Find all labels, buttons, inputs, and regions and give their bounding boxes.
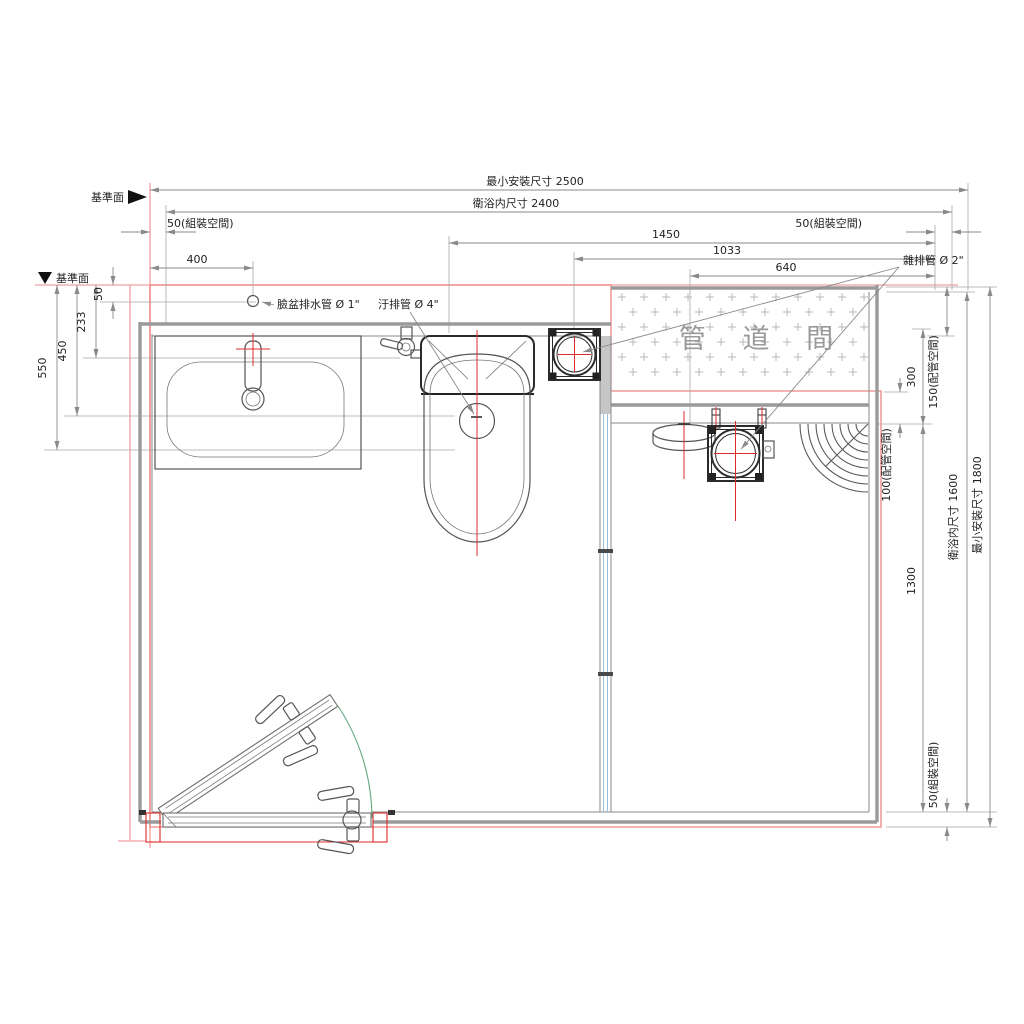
dim-interior-height: 衛浴内尺寸 1600 bbox=[946, 474, 960, 561]
corner-drain-grate bbox=[800, 424, 868, 492]
label-misc-drain: 雜排管 Ø 2" bbox=[903, 253, 964, 267]
dim-pipe-space-100: 100(配管空間) bbox=[879, 428, 893, 502]
bathroom-plan-drawing: 基準面 基準面 最小安裝尺寸 2500 衛浴内尺寸 2400 50(組裝空間) … bbox=[0, 0, 1024, 1024]
dim-pipe-space-150: 150(配管空間) bbox=[926, 335, 940, 409]
soil-pipe-leader bbox=[410, 312, 474, 414]
datum-triangle-top bbox=[128, 190, 147, 204]
datum-label-left: 基準面 bbox=[56, 271, 89, 285]
floor-drain-1 bbox=[549, 329, 600, 380]
flush-valve-lever bbox=[380, 338, 403, 350]
entry-door bbox=[143, 671, 387, 854]
dim-min-install-height: 最小安裝尺寸 1800 bbox=[970, 456, 984, 554]
door-swing-arc bbox=[338, 706, 372, 818]
partition-head bbox=[600, 336, 611, 414]
label-soil-pipe: 汙排管 Ø 4" bbox=[378, 297, 439, 311]
dim-233: 233 bbox=[75, 312, 88, 333]
dim-1033: 1033 bbox=[713, 244, 741, 257]
dim-640: 640 bbox=[776, 261, 797, 274]
extension-lines bbox=[44, 183, 997, 827]
dim-min-install-width: 最小安裝尺寸 2500 bbox=[486, 174, 584, 188]
label-basin-drain: 臉盆排水管 Ø 1" bbox=[277, 297, 360, 311]
floor-drain-2 bbox=[708, 407, 774, 521]
door-jamb-cap-left bbox=[139, 810, 146, 815]
dim-50-left: 50 bbox=[92, 287, 105, 301]
flush-valve bbox=[380, 327, 421, 358]
dim-assembly-right: 50(組裝空間) bbox=[795, 216, 862, 230]
dim-300: 300 bbox=[905, 367, 918, 388]
datum-label-top: 基準面 bbox=[91, 190, 124, 204]
toilet bbox=[421, 330, 534, 556]
basin-drain-point bbox=[248, 296, 259, 307]
dim-assembly-left: 50(組裝空間) bbox=[167, 216, 234, 230]
dim-1300: 1300 bbox=[905, 567, 918, 595]
datum-lines bbox=[35, 183, 958, 848]
datum-symbols bbox=[38, 190, 147, 284]
pipe-duct-label: 管 道 間 bbox=[679, 324, 847, 355]
dim-550: 550 bbox=[36, 358, 49, 379]
datum-triangle-left bbox=[38, 272, 52, 284]
dim-interior-width: 衛浴内尺寸 2400 bbox=[473, 196, 560, 210]
door-jamb-cap-right bbox=[388, 810, 395, 815]
partition-joint-1 bbox=[598, 549, 613, 553]
dim-1450: 1450 bbox=[652, 228, 680, 241]
annotation-texts: 基準面 基準面 最小安裝尺寸 2500 衛浴内尺寸 2400 50(組裝空間) … bbox=[36, 174, 984, 808]
basin-drain-leader bbox=[262, 302, 274, 305]
partition-joint-2 bbox=[598, 672, 613, 676]
floorplan-canvas: 基準面 基準面 最小安裝尺寸 2500 衛浴内尺寸 2400 50(組裝空間) … bbox=[0, 0, 1024, 1024]
dim-assembly-bottom: 50(組裝空間) bbox=[926, 742, 940, 809]
faucet-spout-inner bbox=[246, 392, 260, 406]
dim-400: 400 bbox=[187, 253, 208, 266]
dim-450: 450 bbox=[56, 341, 69, 362]
cleanout-cylinder bbox=[653, 411, 715, 479]
washbasin-unit bbox=[155, 296, 361, 470]
vanity-counter bbox=[155, 336, 361, 469]
